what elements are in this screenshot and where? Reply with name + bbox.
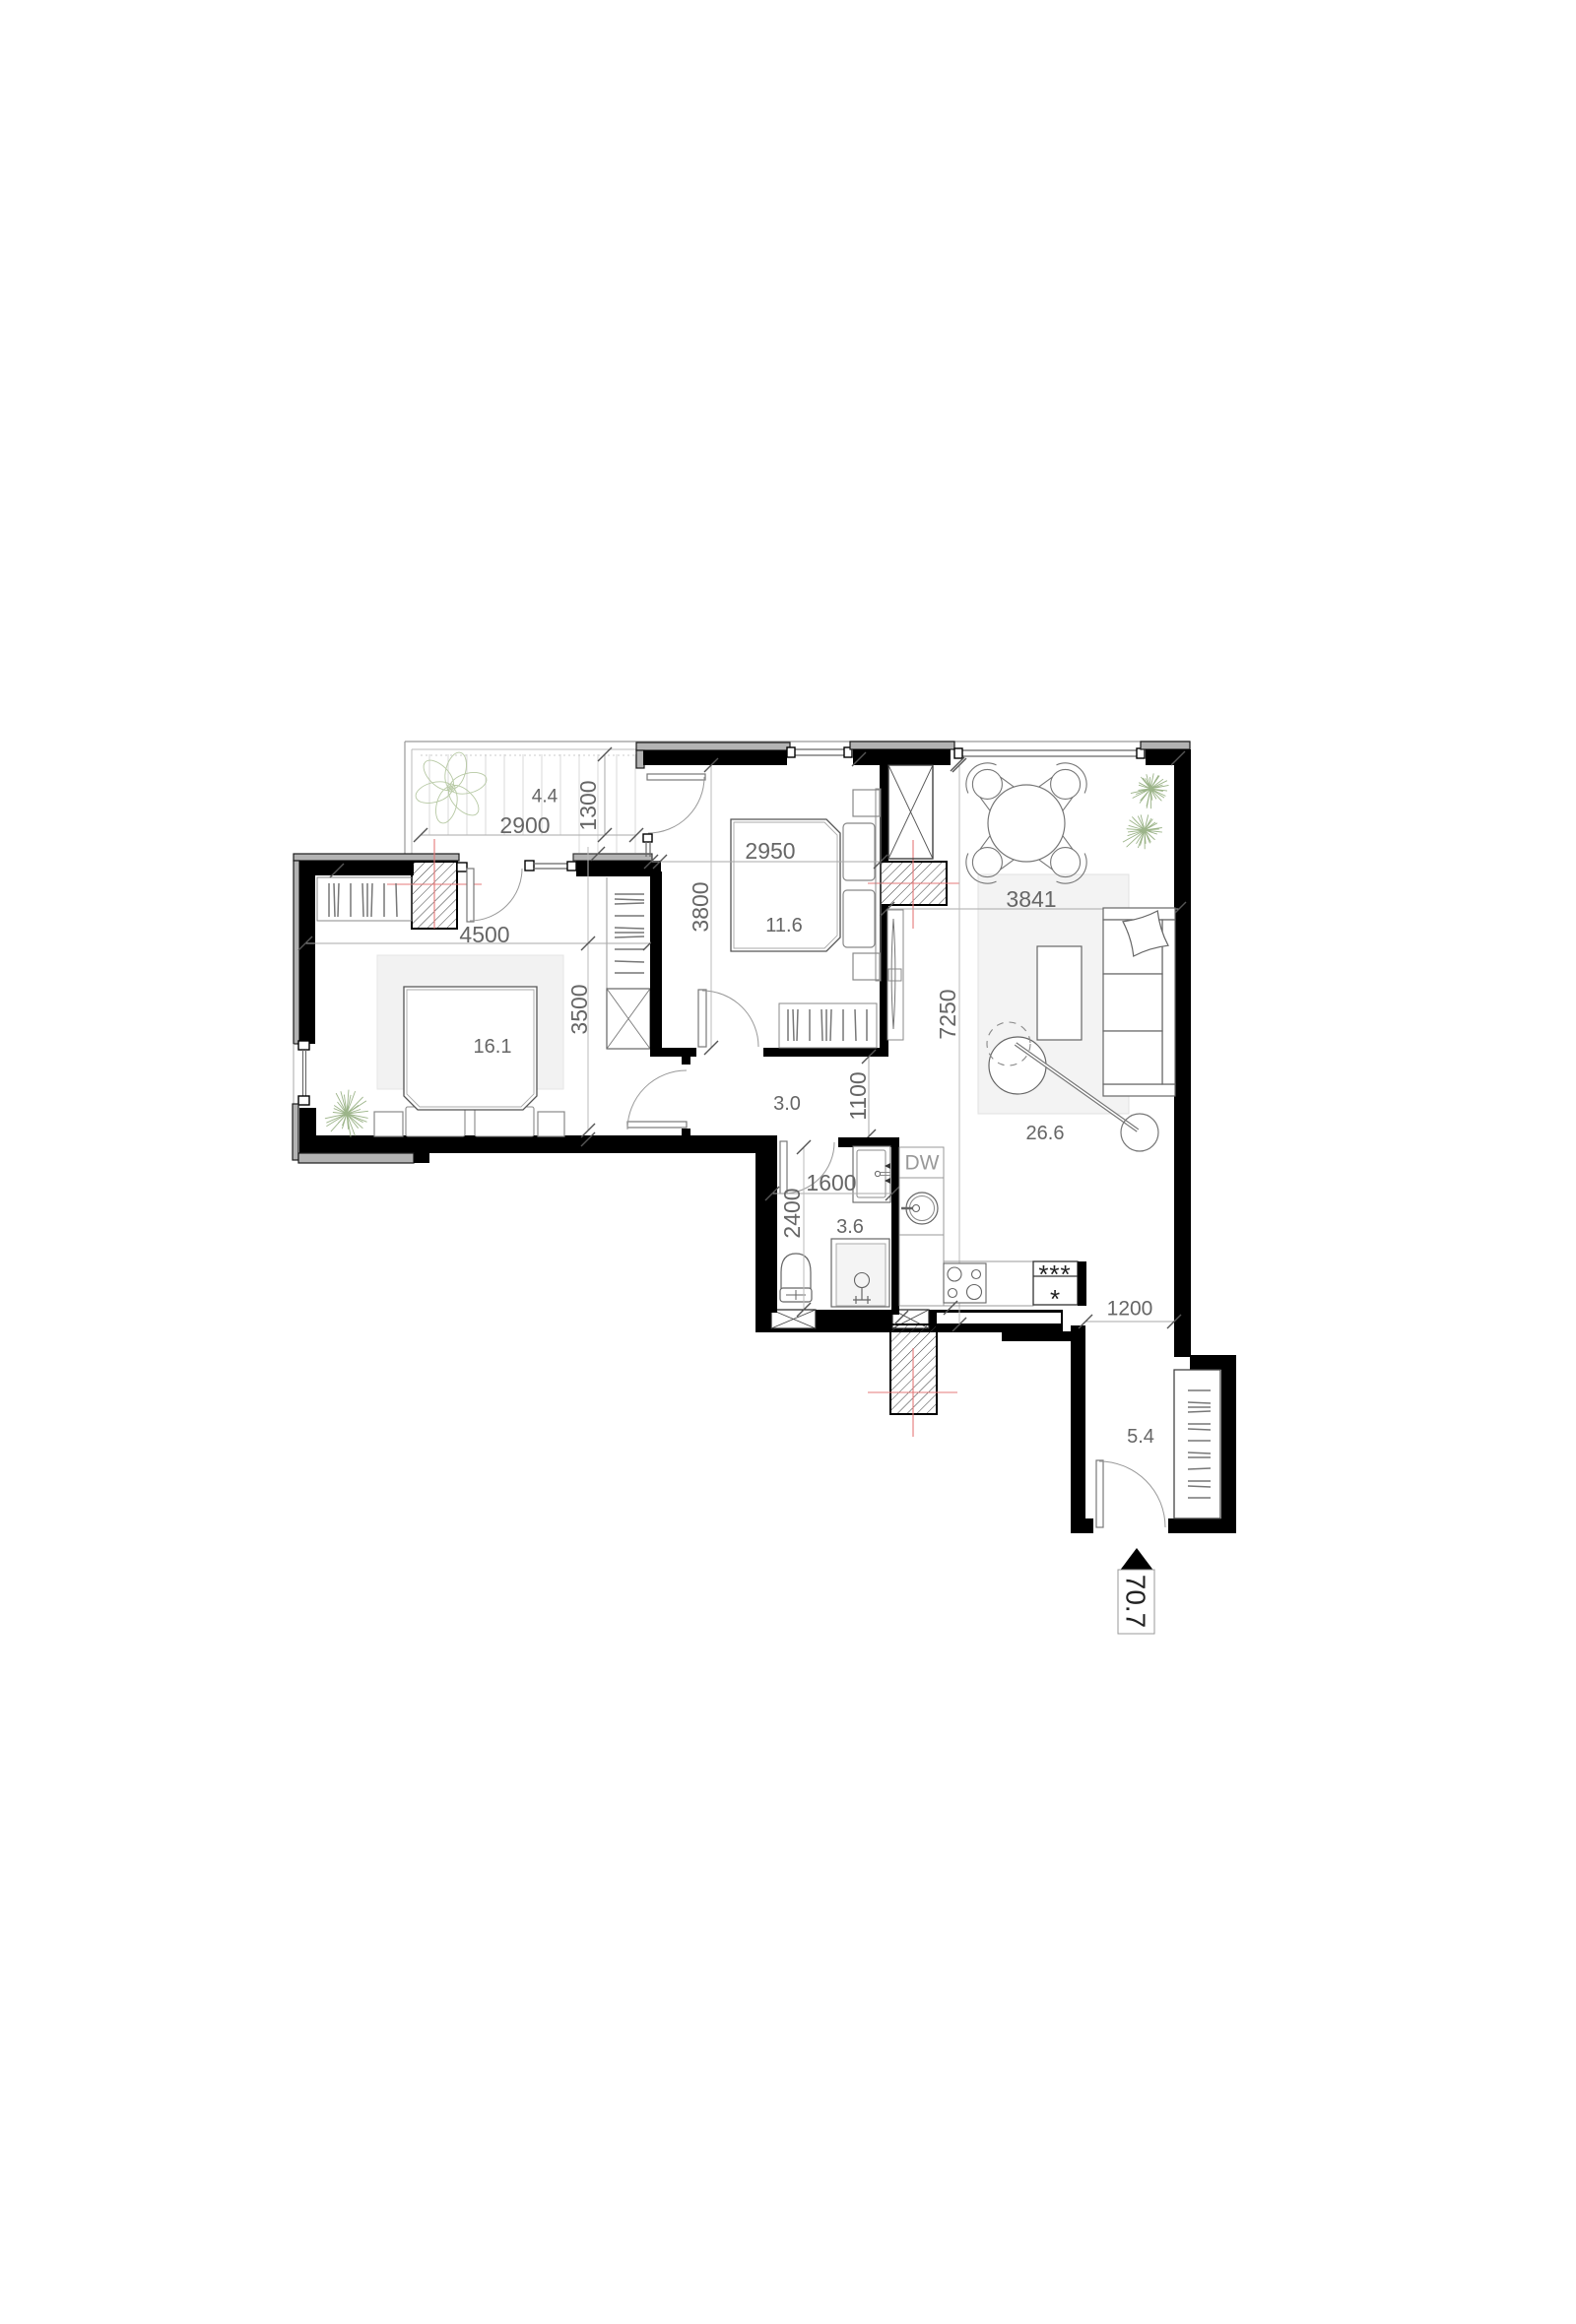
svg-text:1600: 1600	[806, 1170, 856, 1195]
svg-text:7250: 7250	[935, 989, 960, 1039]
svg-text:*: *	[1050, 1284, 1060, 1314]
svg-text:2900: 2900	[499, 812, 550, 838]
svg-text:DW: DW	[905, 1152, 940, 1175]
svg-text:16.1: 16.1	[474, 1036, 512, 1058]
svg-text:4.4: 4.4	[532, 787, 558, 807]
svg-text:26.6: 26.6	[1026, 1123, 1065, 1144]
svg-text:1100: 1100	[845, 1071, 871, 1120]
svg-text:70.7: 70.7	[1121, 1575, 1151, 1629]
svg-text:3800: 3800	[688, 881, 713, 932]
svg-text:2950: 2950	[745, 838, 795, 864]
svg-text:11.6: 11.6	[765, 915, 802, 936]
svg-text:1200: 1200	[1107, 1298, 1153, 1321]
svg-text:1300: 1300	[575, 780, 601, 830]
svg-text:5.4: 5.4	[1127, 1426, 1154, 1448]
svg-text:2400: 2400	[779, 1188, 805, 1238]
svg-text:3.0: 3.0	[773, 1093, 801, 1115]
svg-text:3.6: 3.6	[836, 1216, 864, 1238]
svg-text:3841: 3841	[1006, 886, 1056, 912]
